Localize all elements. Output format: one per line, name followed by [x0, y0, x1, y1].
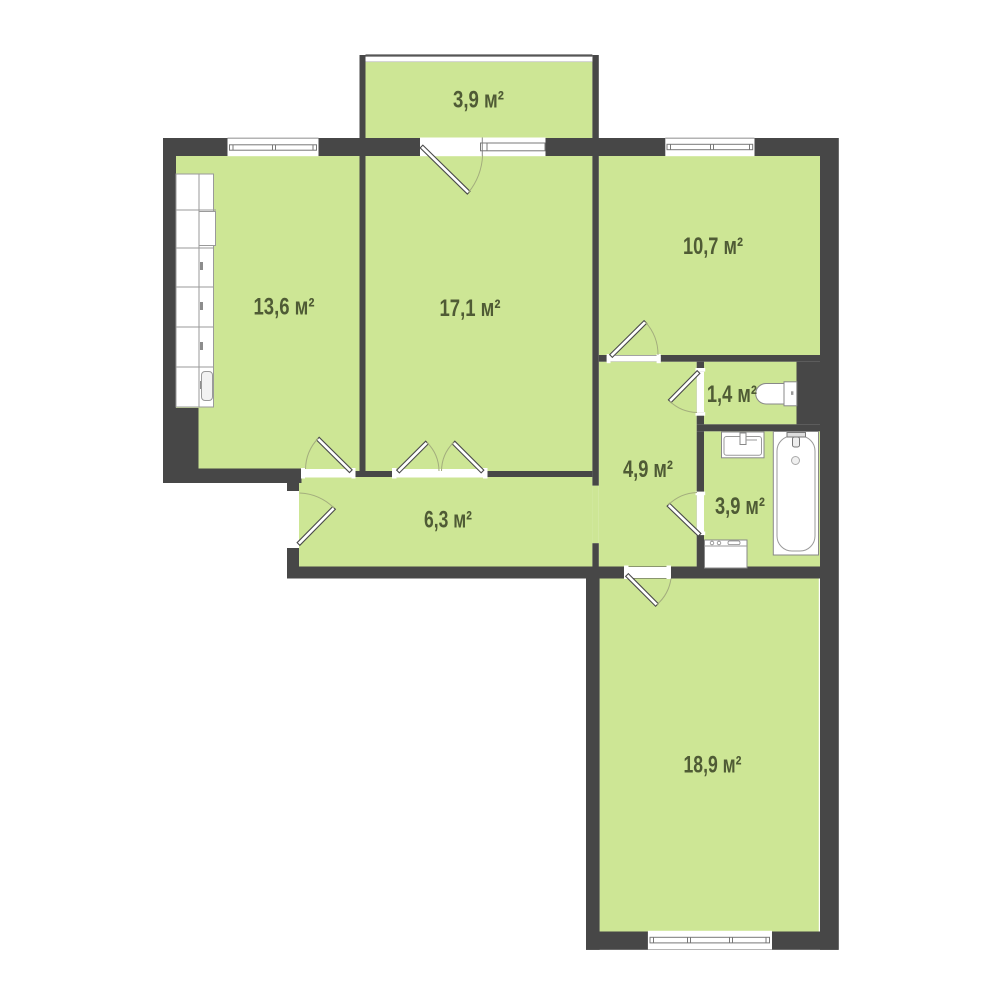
svg-text:3,9 м²: 3,9 м² [715, 493, 765, 520]
svg-text:17,1 м²: 17,1 м² [440, 295, 501, 322]
svg-text:13,6 м²: 13,6 м² [254, 293, 315, 320]
svg-text:6,3 м²: 6,3 м² [424, 507, 472, 534]
svg-text:3,9 м²: 3,9 м² [453, 86, 504, 113]
svg-text:10,7 м²: 10,7 м² [683, 233, 743, 260]
svg-text:4,9 м²: 4,9 м² [623, 456, 673, 483]
svg-text:18,9 м²: 18,9 м² [684, 751, 742, 778]
svg-text:1,4 м²: 1,4 м² [707, 381, 757, 408]
